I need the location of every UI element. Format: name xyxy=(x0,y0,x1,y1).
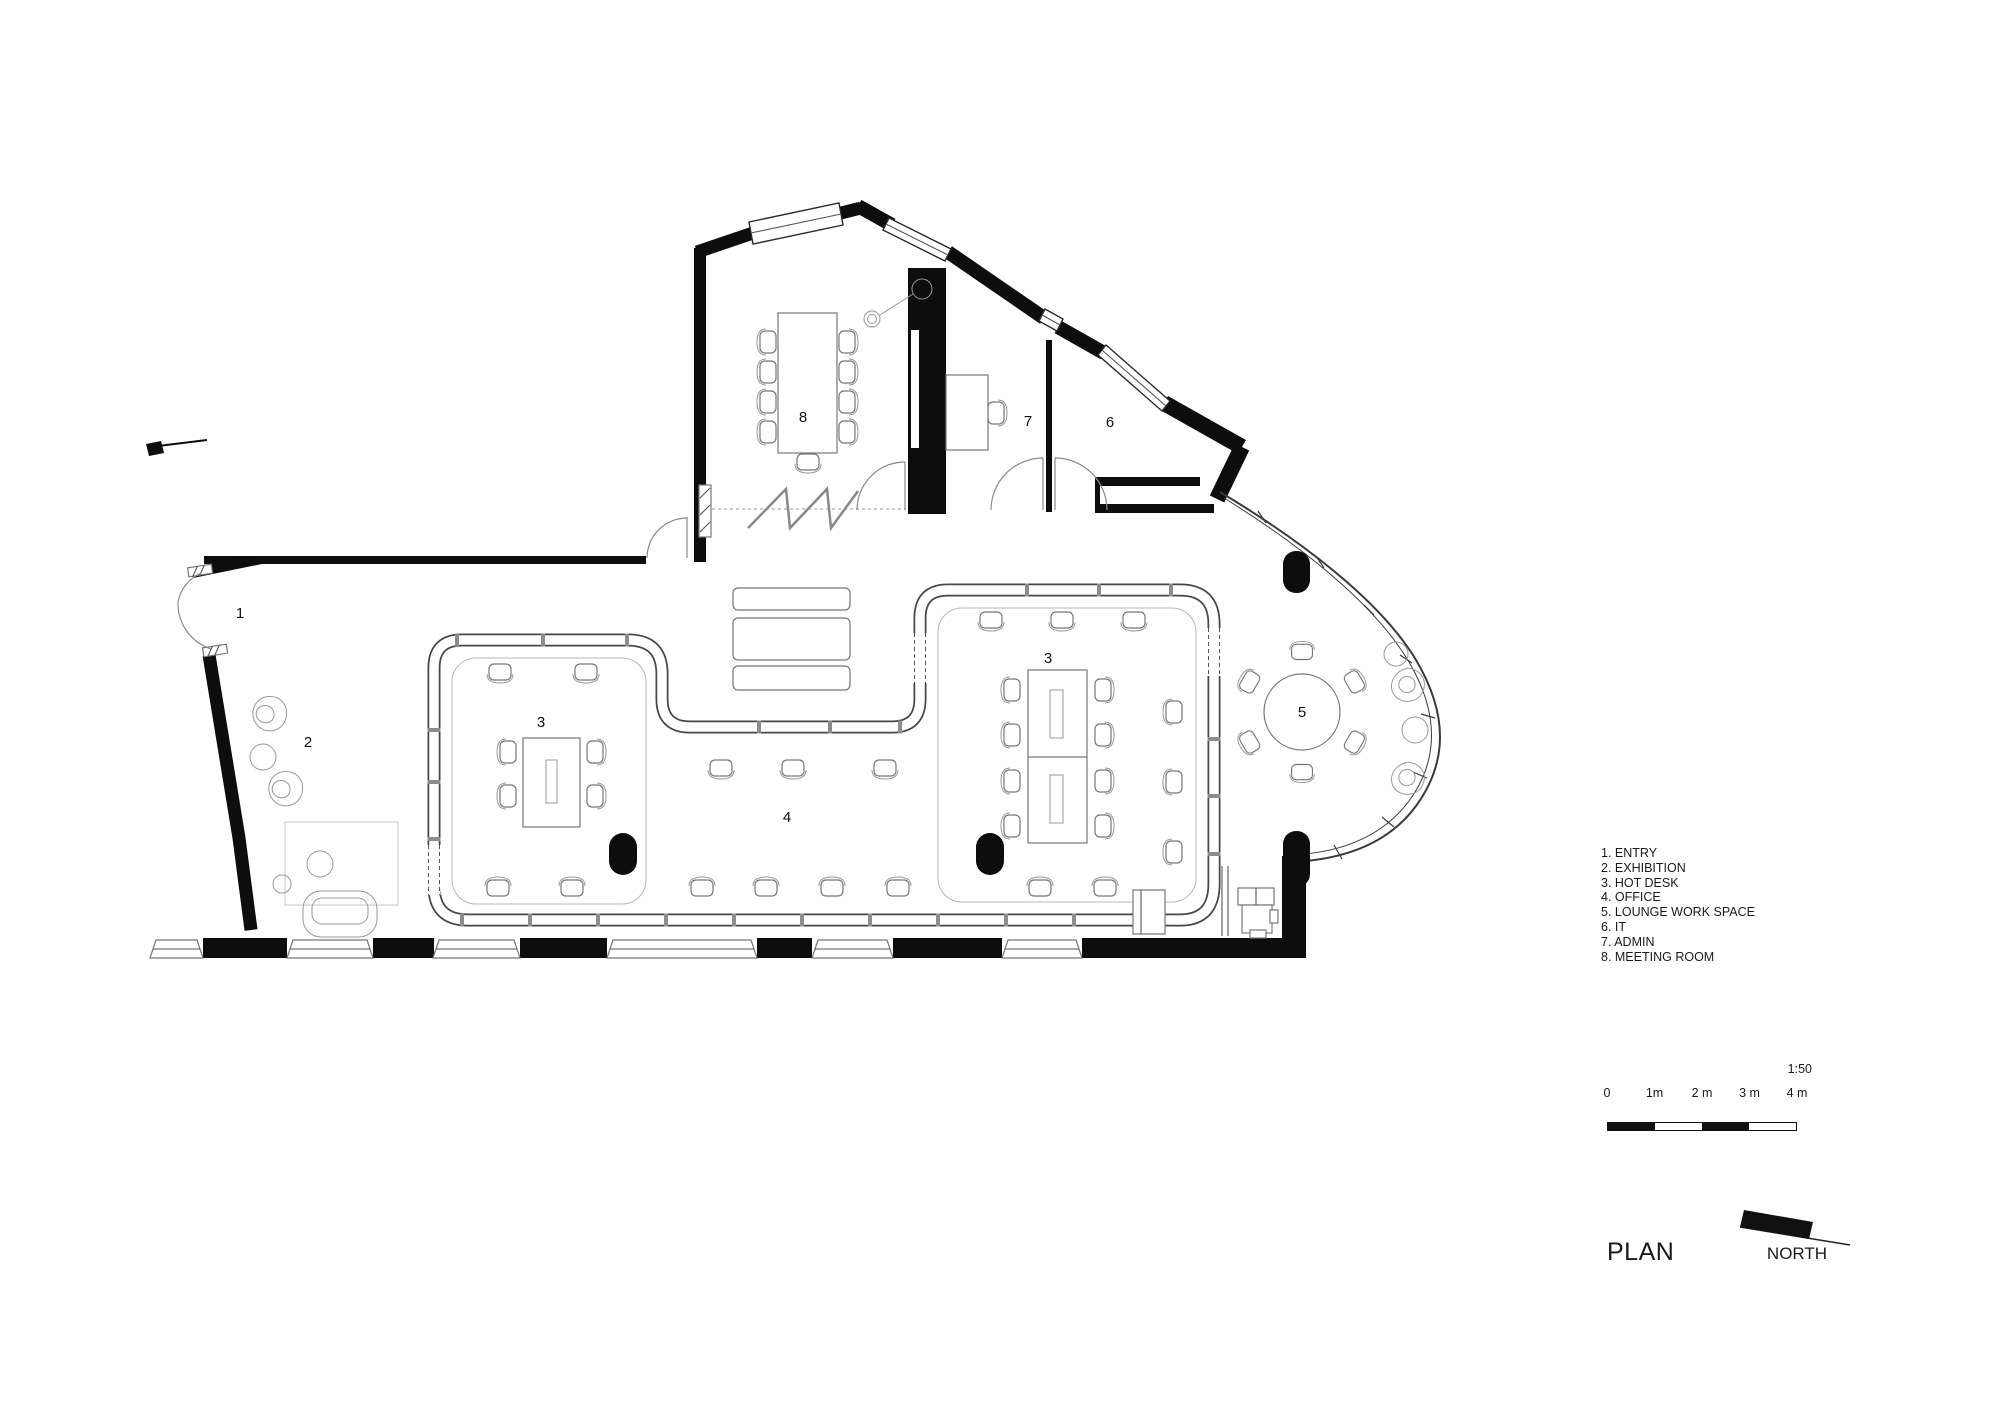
room-label-7: 7 xyxy=(1024,413,1032,430)
scale-bar-segment xyxy=(1749,1123,1796,1130)
column xyxy=(1283,831,1310,887)
scale-tick: 1m xyxy=(1646,1086,1663,1100)
column xyxy=(609,833,637,875)
legend-item: 2. EXHIBITION xyxy=(1601,861,1755,876)
legend-item: 1. ENTRY xyxy=(1601,846,1755,861)
scale-bar xyxy=(1607,1122,1797,1131)
top-wall xyxy=(204,556,646,564)
room-label-1: 1 xyxy=(236,605,244,622)
room-label-3: 3 xyxy=(537,714,545,731)
hot-desk-table xyxy=(523,738,580,827)
windows xyxy=(150,203,1170,958)
cabinet xyxy=(1133,890,1165,934)
lounge-furniture xyxy=(1234,641,1428,794)
column xyxy=(1283,551,1310,593)
corridor-door xyxy=(857,462,905,510)
admin-desk xyxy=(946,375,988,450)
scale-tick-labels: 01m2 m3 m4 m xyxy=(0,1086,2000,1102)
meeting-table xyxy=(778,313,837,453)
admin-door xyxy=(991,458,1043,510)
plan-title: PLAN xyxy=(1607,1238,1674,1267)
room-label-5: 5 xyxy=(1298,704,1306,721)
sofa xyxy=(303,891,377,937)
column xyxy=(976,833,1004,875)
room-label-4: 4 xyxy=(783,809,791,826)
meeting-room-furniture xyxy=(757,279,932,473)
exhibition-furniture xyxy=(250,697,398,937)
scale-tick: 2 m xyxy=(1692,1086,1713,1100)
legend-item: 8. MEETING ROOM xyxy=(1601,950,1755,965)
standing-tables xyxy=(733,588,850,690)
legend-item: 4. OFFICE xyxy=(1601,890,1755,905)
entry-double-door xyxy=(178,564,228,657)
scale-tick: 4 m xyxy=(1787,1086,1808,1100)
room-label-3: 3 xyxy=(1044,650,1052,667)
architectural-plan-sheet: 123435678 1. ENTRY2. EXHIBITION3. HOT DE… xyxy=(0,0,2000,1413)
room-label-8: 8 xyxy=(799,409,807,426)
lounge-poufs xyxy=(1384,642,1428,794)
legend-item: 3. HOT DESK xyxy=(1601,876,1755,891)
door-pocket xyxy=(699,485,711,537)
hot-desk-left-furniture xyxy=(487,664,606,827)
scale-bar-segment xyxy=(1608,1123,1655,1130)
main-space-door xyxy=(647,517,687,558)
walls xyxy=(146,206,1306,958)
legend-item: 5. LOUNGE WORK SPACE xyxy=(1601,905,1755,920)
window xyxy=(749,203,843,244)
hot-desk-right-furniture xyxy=(978,612,1182,865)
legend-item: 7. ADMIN xyxy=(1601,935,1755,950)
room-label-6: 6 xyxy=(1106,414,1114,431)
folding-partition xyxy=(712,489,906,528)
scale-bar-segment xyxy=(1655,1123,1702,1130)
scale-tick: 3 m xyxy=(1739,1086,1760,1100)
scale-tick: 0 xyxy=(1604,1086,1611,1100)
north-arrow xyxy=(1740,1210,1850,1245)
corner-chevron-wall xyxy=(1217,447,1242,499)
room-label-2: 2 xyxy=(304,734,312,751)
window xyxy=(1098,345,1170,411)
scale-ratio: 1:50 xyxy=(1737,1062,1812,1076)
room-legend: 1. ENTRY2. EXHIBITION3. HOT DESK4. OFFIC… xyxy=(1601,846,1755,964)
rug xyxy=(285,822,398,905)
side-table xyxy=(307,851,333,877)
admin-furniture xyxy=(946,375,1007,450)
window xyxy=(1039,309,1063,331)
scale-bar-segment xyxy=(1702,1123,1749,1130)
window xyxy=(883,218,951,261)
floor-plan-svg: 123435678 xyxy=(0,0,2000,1413)
north-label: NORTH xyxy=(1752,1244,1842,1264)
legend-item: 6. IT xyxy=(1601,920,1755,935)
